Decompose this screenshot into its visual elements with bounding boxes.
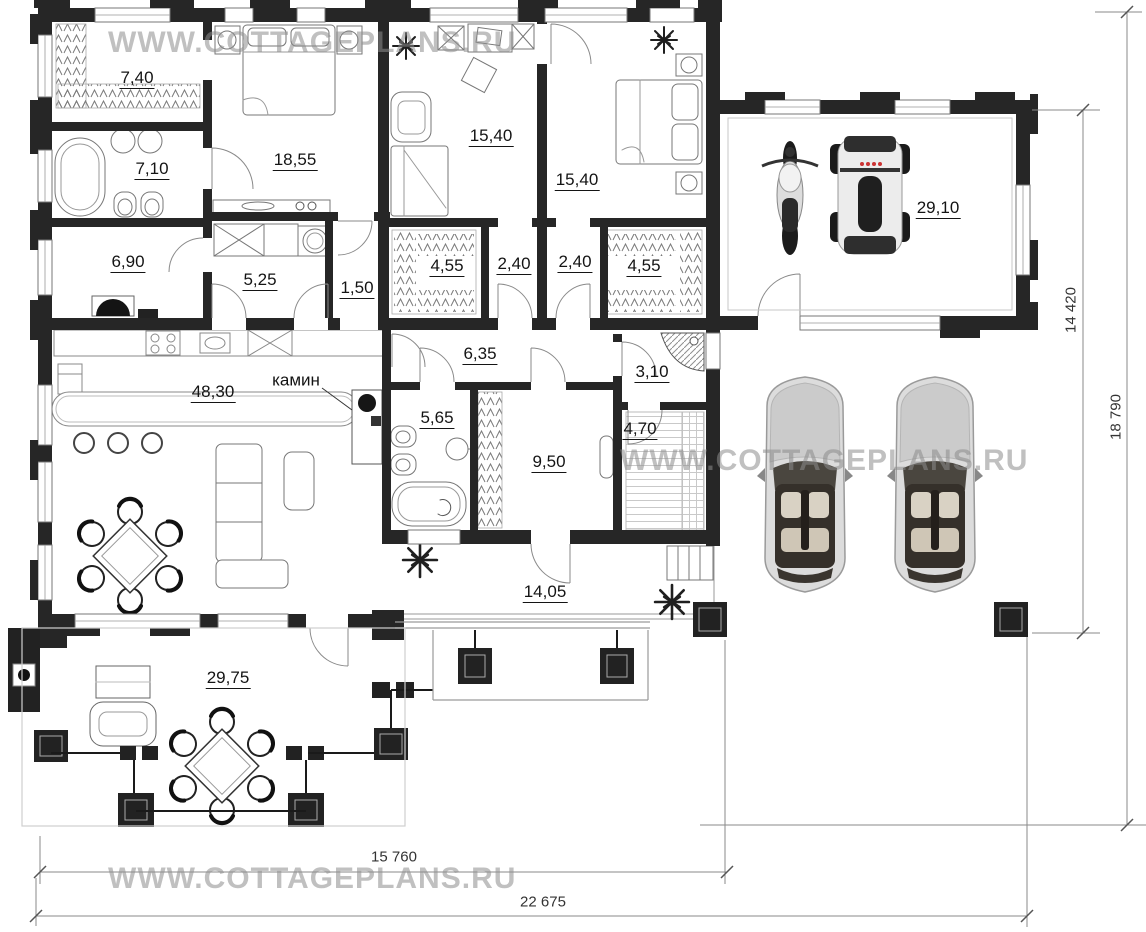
room-area-laundry: 5,25 <box>242 271 277 291</box>
bathtub <box>55 138 105 216</box>
room-area-garage: 29,10 <box>916 199 961 219</box>
room-area-bathroom-2: 5,65 <box>419 409 454 429</box>
room-area-bathroom-1: 7,10 <box>134 160 169 180</box>
room-area-terrace-front: 29,75 <box>206 669 251 689</box>
watermark-middle: WWW.COTTAGEPLANS.RU <box>620 446 1028 476</box>
terrace-front-furniture <box>90 666 156 746</box>
dimension-plot-side: 18 790 <box>1109 394 1124 440</box>
room-area-bedroom-3: 15,40 <box>555 171 600 191</box>
garage-interior <box>728 118 1012 310</box>
atv-quad <box>830 136 910 254</box>
motorcycle <box>762 141 818 255</box>
room-area-hall-small: 1,50 <box>339 279 374 299</box>
laundry-units <box>214 224 332 256</box>
sofa-set <box>216 444 314 588</box>
room-area-corridor-2: 2,40 <box>557 253 592 273</box>
dresser <box>213 200 330 213</box>
floor-plan-page: 7,40 7,10 18,55 15,40 15,40 29,10 6,90 5… <box>0 0 1146 932</box>
dimension-garage-side: 14 420 <box>1064 287 1079 333</box>
room-area-bedroom-1: 18,55 <box>273 151 318 171</box>
room-area-dressing-room: 9,50 <box>531 453 566 473</box>
room-area-closet-1: 4,55 <box>429 257 464 277</box>
room-area-sauna: 4,70 <box>622 420 657 440</box>
dining-table <box>75 499 186 613</box>
dimension-plot-width: 22 675 <box>520 895 566 910</box>
car-1 <box>757 377 853 592</box>
watermark-bottom: WWW.COTTAGEPLANS.RU <box>108 864 516 894</box>
bathroom-2-fixtures <box>391 426 473 526</box>
room-area-bedroom-2: 15,40 <box>469 127 514 147</box>
room-area-living-room: 48,30 <box>191 383 236 403</box>
room-area-corridor-1: 2,40 <box>496 255 531 275</box>
fireplace-label: камин <box>272 372 320 389</box>
room-area-wardrobe: 7,40 <box>119 69 154 89</box>
car-2 <box>887 377 983 592</box>
boiler <box>92 296 158 318</box>
toilets <box>114 192 163 217</box>
room-area-boiler-room: 6,90 <box>110 253 145 273</box>
room-area-hallway: 6,35 <box>462 345 497 365</box>
terrace-dining-table <box>167 709 278 823</box>
fireplace <box>352 390 382 464</box>
room-area-terrace-back: 14,05 <box>523 583 568 603</box>
bedroom-3-furniture <box>616 27 702 194</box>
room-area-shower-room: 3,10 <box>634 363 669 383</box>
watermark-top: WWW.COTTAGEPLANS.RU <box>108 28 516 58</box>
room-area-closet-2: 4,55 <box>626 257 661 277</box>
